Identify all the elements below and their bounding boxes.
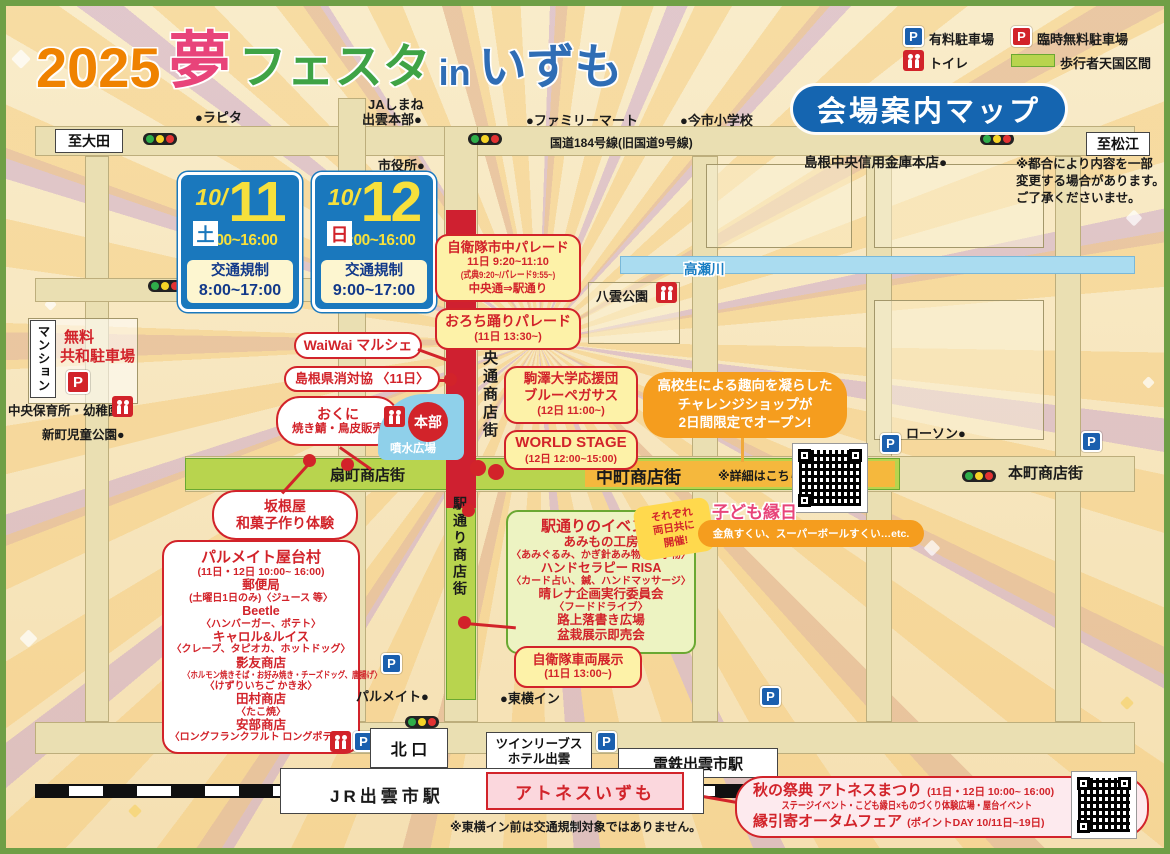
legend-toilet: トイレ	[929, 53, 968, 72]
day-of-week-badge: 日	[327, 221, 352, 246]
callout-jsdf-vehicles: 自衛隊車両展示 (11日 13:00~)	[514, 646, 642, 688]
callout-time: (11日 13:30~)	[437, 331, 579, 345]
landmark-imaichi-school: ●今市小学校	[680, 110, 753, 129]
twin-leaves-hotel-box: ツインリーブス ホテル出雲	[486, 732, 592, 772]
street-honmachi: 本町商店街	[1008, 462, 1083, 483]
landmark-mansion: マンション	[30, 320, 56, 398]
yatai-items: 〈けずりいちご かき氷〉	[166, 681, 356, 693]
yatai-shop: 田村商店	[166, 692, 356, 706]
landmark-yakumo-park: 八雲公園	[596, 286, 648, 305]
event-name: 盆栽展示即売会	[510, 628, 692, 642]
event-point	[303, 454, 316, 467]
callout-title: WORLD STAGE	[506, 434, 636, 453]
notice-line3: ご了承くださいませ。	[1016, 187, 1141, 206]
autumn-title: 秋の祭典 アトネスまつり	[753, 782, 922, 801]
callout-line: チャレンジショップが	[643, 396, 847, 415]
callout-title: 自衛隊車両展示	[516, 652, 640, 668]
street-chuo-dori: 中央通商店街	[479, 332, 500, 472]
legend-paid-parking: 有料駐車場	[929, 29, 994, 48]
landmark-ja-line2: 出雲本部●	[362, 109, 422, 128]
callout-title: 駒澤大学応援団	[506, 371, 636, 388]
road-vertical	[1055, 156, 1081, 722]
autumn-title-hours: (11日・12日 10:00~ 16:00)	[927, 786, 1054, 799]
toilet-icon	[656, 282, 677, 303]
traffic-light-icon	[980, 133, 1014, 145]
yatai-hours: (11日・12日 10:00~ 16:00)	[166, 566, 356, 578]
traffic-regulation-label: 交通規制	[187, 263, 293, 280]
event-point	[462, 504, 475, 517]
poster-title: 2025 夢 フェスタ in いずも	[36, 10, 623, 100]
sparkle-icon	[19, 629, 37, 647]
sparkle-icon	[1120, 696, 1134, 710]
city-block	[874, 300, 1044, 440]
free-parking-icon: P	[66, 370, 90, 394]
title-yume: 夢	[169, 10, 231, 100]
callout-komazawa: 駒澤大学応援団 ブルーペガサス (12日 11:00~)	[504, 366, 638, 424]
callout-challenge-shop: 高校生による趣向を凝らした チャレンジショップが 2日間限定でオープン!	[643, 372, 847, 438]
callout-world-stage: WORLD STAGE (12日 12:00~15:00)	[504, 430, 638, 470]
paid-parking-icon: P	[903, 26, 924, 47]
landmark-palmate: パルメイト●	[356, 686, 429, 705]
yatai-items: 〈たこ焼〉	[166, 707, 356, 719]
traffic-regulation-label: 交通規制	[321, 263, 427, 280]
sparkle-icon	[924, 540, 941, 557]
callout-orochi-parade: おろち踊りパレード (11日 13:30~)	[435, 308, 581, 350]
yatai-title: パルメイト屋台村	[166, 549, 356, 566]
parking-icon: P	[760, 686, 781, 707]
sparkle-icon	[128, 804, 142, 818]
title-year: 2025	[36, 35, 161, 100]
title-in: in	[439, 52, 471, 94]
callout-shodaikyo: 島根県消対協 〈11日〉	[284, 366, 440, 392]
date-prefix: 10/	[195, 184, 227, 211]
qr-code-autumn	[1072, 772, 1136, 838]
toilet-icon	[330, 731, 351, 752]
callout-title: 島根県消対協 〈11日〉	[286, 371, 438, 387]
parking-icon: P	[880, 433, 901, 454]
qr-code-detail	[793, 444, 867, 512]
sparkle-icon	[11, 49, 31, 69]
toilet-icon	[384, 406, 405, 427]
callout-time: 11日 9:20~11:10	[437, 256, 579, 270]
road-label-route184: 国道184号線(旧国道9号線)	[550, 134, 693, 151]
traffic-regulation-hours: 8:00~17:00	[187, 281, 293, 300]
sparkle-icon	[1126, 210, 1143, 227]
parking-icon: P	[381, 653, 402, 674]
autumn-events: ステージイベント・こども縁日×ものづくり体験広場・屋台イベント	[781, 801, 1040, 814]
connector-line	[741, 438, 744, 462]
fountain-plaza-label: 噴水広場	[390, 440, 436, 456]
traffic-light-icon	[405, 716, 439, 728]
landmark-lapita: ●ラピタ	[195, 107, 242, 126]
callout-waiwai-marche: WaiWai マルシェ	[294, 332, 422, 359]
autumn-fair-title: 縁引寄オータムフェア	[753, 813, 902, 832]
hotel-name-line2: ホテル出雲	[508, 752, 571, 767]
traffic-light-icon	[962, 470, 996, 482]
title-festa: フェスタ	[239, 27, 431, 97]
event-items: 〈フードドライブ〉	[510, 601, 692, 613]
free-parking-label2: 共和駐車場	[60, 345, 135, 366]
landmark-shinkin-bank: 島根中央信用金庫本店●	[804, 151, 947, 171]
event-name: ハンドセラピー RISA	[510, 561, 692, 575]
event-point	[341, 458, 354, 471]
callout-time: (12日 12:00~15:00)	[506, 453, 636, 466]
free-parking-label1: 無料	[64, 326, 94, 347]
callout-time: (11日 13:00~)	[516, 668, 640, 682]
event-point	[458, 616, 471, 629]
hq-badge: 本部	[408, 402, 448, 442]
legend-pedestrian-zone: 歩行者天国区間	[1060, 53, 1151, 72]
callout-jsdf-parade: 自衛隊市中パレード 11日 9:20~11:10 (式典9:20~/パレード9:…	[435, 234, 581, 302]
callout-title2: ブルーペガサス	[506, 388, 636, 405]
date-card-oct12: 10/12 日 10:00~16:00 交通規制9:00~17:00	[312, 172, 436, 312]
event-point	[488, 464, 504, 480]
yatai-shop: 郵便局	[166, 578, 356, 592]
callout-route: 中央通⇒駅通り	[437, 282, 579, 296]
callout-time: (12日 11:00~)	[506, 405, 636, 419]
callout-palmate-yatai: パルメイト屋台村 (11日・12日 10:00~ 16:00) 郵便局 (土曜日…	[162, 540, 360, 754]
kids-fair-items: 金魚すくい、スーパーボールすくい…etc.	[698, 520, 924, 547]
yatai-shop: 影友商店	[166, 656, 356, 670]
event-name: 路上落書き広場	[510, 613, 692, 627]
map-title-badge: 会場案内マップ	[793, 86, 1065, 132]
toyoko-regulation-note: ※東横イン前は交通規制対象ではありません。	[450, 818, 701, 835]
callout-title: おくに	[278, 406, 398, 423]
yatai-items: 〈ハンバーガー、ポテト〉	[166, 619, 356, 631]
callout-detail: (式典9:20~/パレード9:55~)	[450, 270, 566, 282]
jr-station-label: JR出雲市駅	[330, 782, 444, 807]
callout-sakaneya: 坂根屋 和菓子作り体験	[212, 490, 358, 540]
yatai-items: 〈クレープ、タピオカ、ホットドッグ〉	[166, 644, 356, 656]
callout-title: WaiWai マルシェ	[296, 337, 420, 354]
north-exit-box: 北 口	[370, 728, 448, 768]
callout-title: 自衛隊市中パレード	[437, 240, 579, 257]
date-day: 11	[228, 175, 284, 229]
event-name: 晴レナ企画実行委員会	[510, 587, 692, 601]
river-label-takase: 高瀬川	[684, 258, 725, 278]
autumn-fair-dates: (ポイントDAY 10/11日~19日)	[907, 817, 1044, 830]
hotel-name-line1: ツインリーブス	[496, 737, 583, 752]
yatai-items: 〈ホルモン焼きそば・お好み焼き・チーズドッグ、唐揚げ〉	[183, 670, 339, 680]
parking-icon: P	[1081, 431, 1102, 452]
landmark-familymart: ●ファミリーマート	[526, 110, 638, 129]
temp-free-parking-icon: P	[1011, 26, 1032, 47]
toilet-icon	[112, 396, 133, 417]
callout-line: 2日間限定でオープン!	[643, 414, 847, 433]
yatai-items: 〈ロングフランクフルト ロングポテト〉	[166, 732, 356, 744]
landmark-nursery: 中央保育所・幼稚園●	[8, 400, 128, 419]
event-point	[470, 460, 486, 476]
yatai-items: (土曜日1日のみ)〈ジュース 等〉	[166, 593, 356, 605]
direction-east: 至松江	[1086, 132, 1150, 156]
sparkle-icon	[1142, 376, 1155, 389]
traffic-light-icon	[148, 280, 182, 292]
title-izumo: いずも	[479, 27, 623, 97]
event-items: 〈カード占い、鍼、ハンドマッサージ〉	[510, 576, 692, 588]
city-block	[706, 164, 852, 248]
traffic-regulation-hours: 9:00~17:00	[321, 281, 427, 300]
toilet-icon	[903, 50, 924, 71]
landmark-shinmachi-park: 新町児童公園●	[42, 424, 125, 443]
date-day: 12	[361, 175, 420, 229]
yatai-shop: Beetle	[166, 604, 356, 618]
festival-map-poster: 2025 夢 フェスタ in いずも P 有料駐車場 P 臨時無料駐車場 トイレ…	[0, 0, 1170, 854]
callout-title: 坂根屋	[214, 498, 356, 515]
legend-temp-free-parking: 臨時無料駐車場	[1037, 29, 1128, 48]
yatai-shop: キャロル&ルイス	[166, 630, 356, 644]
traffic-light-icon	[143, 133, 177, 145]
day-of-week-badge: 土	[193, 221, 218, 246]
landmark-toyoko-inn: ●東横イン	[500, 688, 560, 707]
atnes-izumo-box: アトネスいずも	[486, 772, 684, 810]
date-card-oct11: 10/11 土 9:00~16:00 交通規制8:00~17:00	[178, 172, 302, 312]
landmark-lawson: ローソン●	[906, 423, 966, 442]
callout-detail: 和菓子作り体験	[214, 515, 356, 532]
event-point	[444, 373, 457, 386]
pedestrian-zone-icon	[1011, 54, 1055, 67]
date-prefix: 10/	[328, 184, 360, 211]
callout-title: おろち踊りパレード	[437, 313, 579, 331]
yatai-shop: 安部商店	[166, 718, 356, 732]
traffic-light-icon	[468, 133, 502, 145]
direction-west: 至大田	[55, 129, 123, 153]
callout-line: 高校生による趣向を凝らした	[643, 377, 847, 396]
parking-icon: P	[596, 731, 617, 752]
